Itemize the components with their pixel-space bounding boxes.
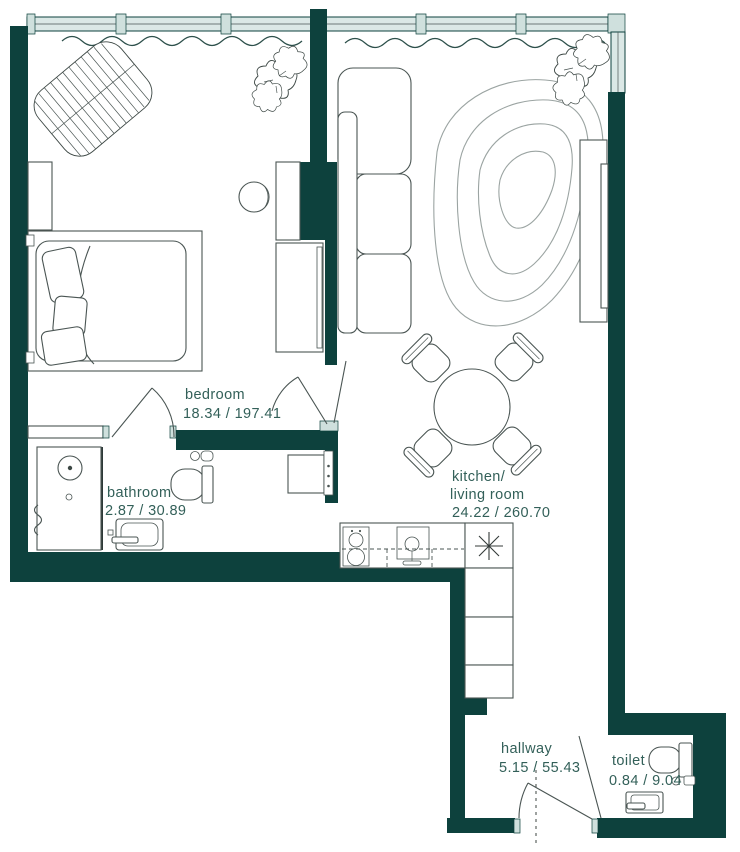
washing-machine: [108, 519, 163, 550]
bedroom-label: bedroom: [185, 387, 245, 403]
bathroom-sink: [171, 451, 213, 503]
hallway-label: hallway: [501, 741, 553, 757]
asterisk-symbol: [475, 532, 503, 560]
toilet-sink: [626, 792, 663, 813]
toilet-label: toilet: [612, 753, 645, 769]
kitchen-cabinets: [465, 568, 513, 698]
sofa: [338, 68, 411, 333]
tv: [601, 164, 608, 308]
toilet-angled-wall: [579, 736, 601, 818]
rug: [434, 80, 603, 326]
bed: [26, 231, 202, 371]
pillow: [41, 326, 88, 366]
desk-chair: [239, 182, 269, 212]
closet: [28, 162, 52, 230]
floor-plan-svg: bedroom 18.34 / 197.41 bathroom 2.87 / 3…: [0, 0, 740, 847]
bathroom-area: 2.87 / 30.89: [105, 503, 186, 519]
kitchen-living-label-1: kitchen/: [452, 469, 506, 485]
fridge: [288, 451, 333, 495]
stove: [343, 527, 369, 566]
kitchen-living-label-2: living room: [450, 487, 525, 503]
entry-door: [519, 783, 592, 819]
hallway-area: 5.15 / 55.43: [499, 760, 580, 776]
bedroom-area: 18.34 / 197.41: [183, 406, 281, 422]
floor-plan: bedroom 18.34 / 197.41 bathroom 2.87 / 3…: [0, 0, 740, 847]
desk: [276, 162, 300, 240]
curtain-living: [345, 39, 605, 48]
plant: [247, 40, 312, 118]
bedroom-door: [272, 361, 346, 424]
wardrobe: [276, 243, 323, 352]
kitchen-sink: [397, 527, 429, 565]
toilet-area: 0.84 / 9.04: [609, 773, 682, 789]
shower: [35, 447, 102, 550]
bathroom-label: bathroom: [107, 485, 171, 501]
bathroom-door: [112, 388, 174, 437]
dining-table: [434, 369, 510, 445]
kitchen-living-area: 24.22 / 260.70: [452, 505, 550, 521]
bathroom-partition-wall: [28, 426, 103, 438]
armchair: [26, 34, 160, 165]
plant: [547, 27, 616, 111]
